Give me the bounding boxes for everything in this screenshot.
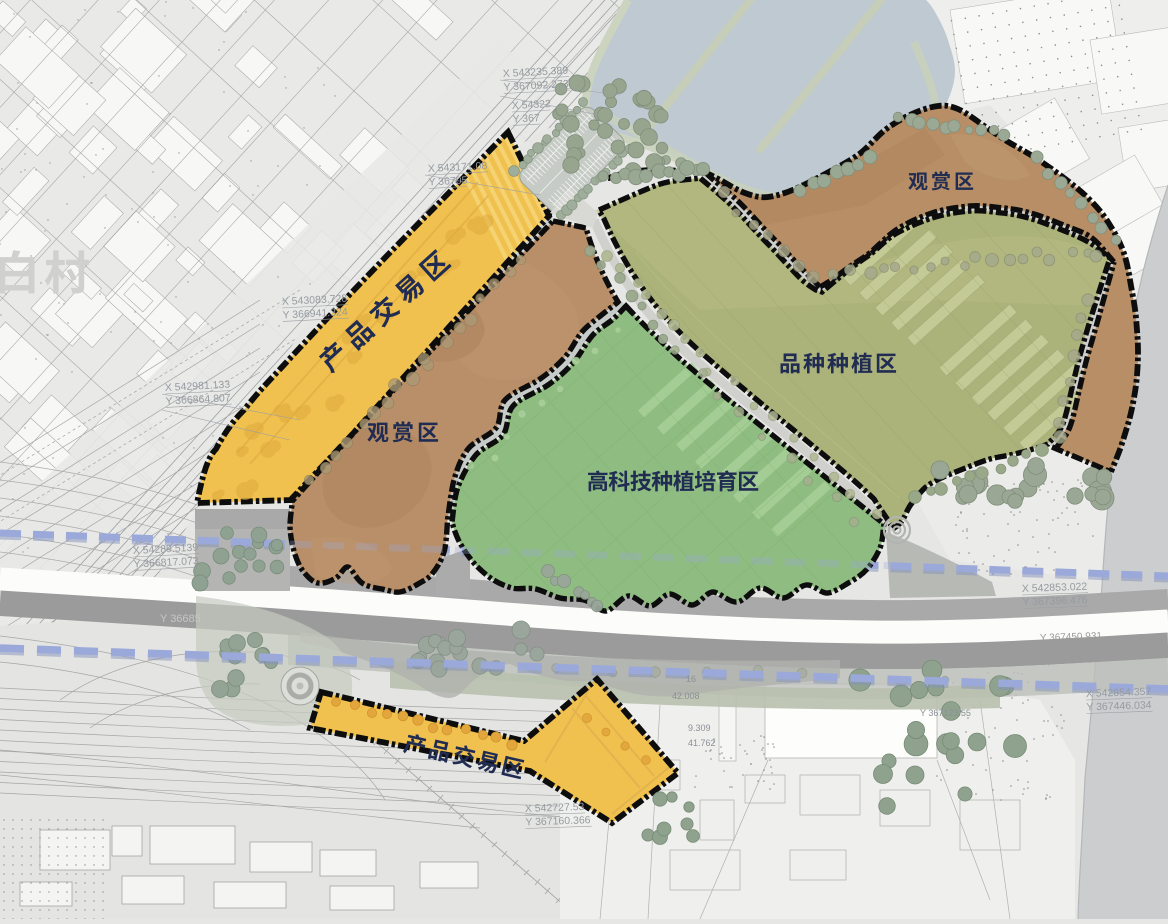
svg-text:42.008: 42.008	[672, 691, 700, 701]
svg-text:X 542727.53: X 542727.53	[525, 801, 585, 815]
svg-text:16: 16	[686, 674, 696, 684]
svg-text:Y 367123.55: Y 367123.55	[920, 708, 971, 718]
svg-text:Y 367450.931: Y 367450.931	[1040, 631, 1103, 644]
svg-text:41.762: 41.762	[688, 738, 716, 748]
svg-text:Y 36685: Y 36685	[160, 613, 201, 625]
svg-text:X 54322: X 54322	[512, 98, 552, 112]
svg-text:Y 367: Y 367	[512, 112, 540, 125]
svg-text:9.309: 9.309	[688, 723, 711, 733]
